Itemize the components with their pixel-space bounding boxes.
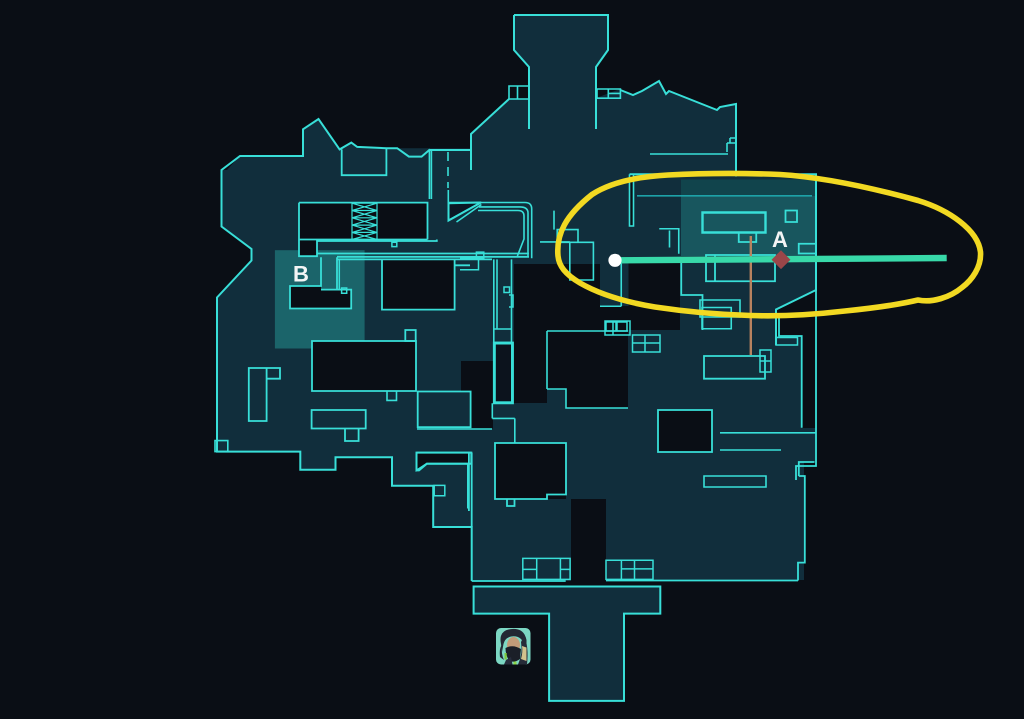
svg-text:B: B [293, 262, 309, 287]
svg-text:A: A [772, 227, 788, 252]
